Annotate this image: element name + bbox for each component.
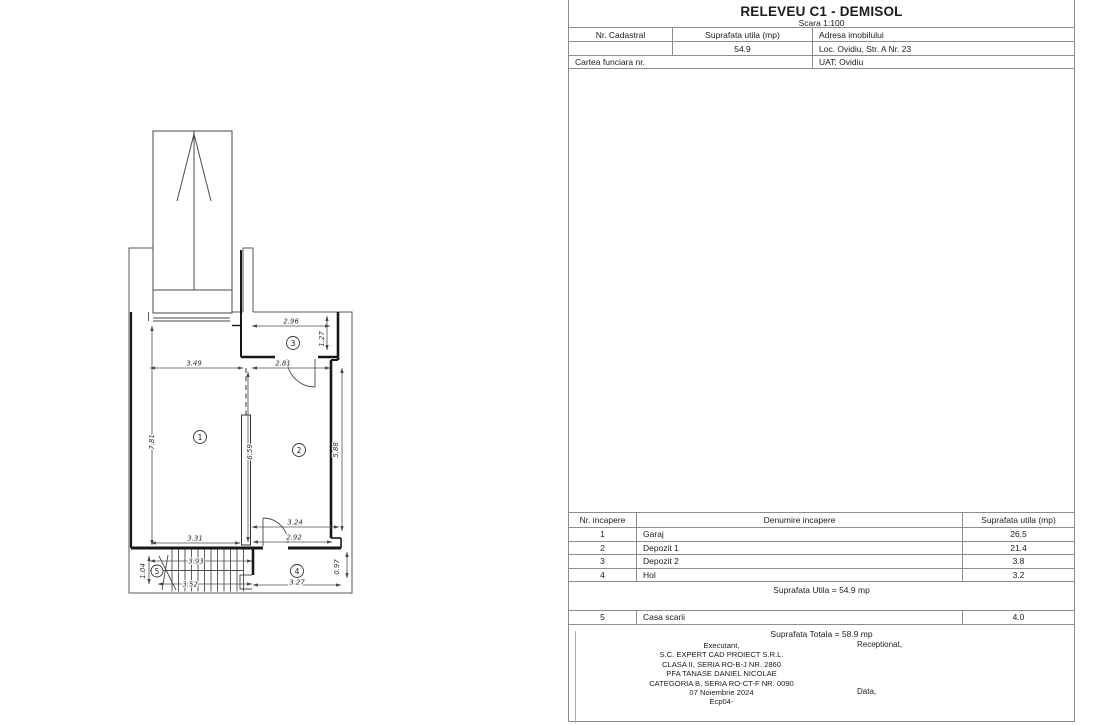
room-row: 3 Depozit 2 3.8 — [569, 555, 1074, 569]
door-arc — [263, 518, 288, 543]
room-name: Garaj — [637, 528, 963, 541]
hol-stairs-threshold — [240, 575, 252, 589]
adresa-value: Loc. Ovidiu, Str. A Nr. 23 — [813, 42, 1074, 55]
executant-block: Executant, S.C. EXPERT CAD PROIECT S.R.L… — [624, 641, 819, 707]
executant-date: 07 Noiembrie 2024 — [624, 688, 819, 697]
dim-label: 3.24 — [287, 519, 303, 527]
uat-value: UAT: Ovidiu — [813, 56, 1074, 68]
room-area: 3.2 — [963, 569, 1074, 582]
door-room3 — [287, 359, 315, 387]
rooms-table: Nr. incapere Denumire incapere Suprafata… — [569, 512, 1074, 643]
dim-label: 3.49 — [186, 360, 202, 368]
suprafata-totala: Suprafata Totala = 58.9 mp — [569, 625, 1074, 643]
header-table-row: 54.9 Loc. Ovidiu, Str. A Nr. 23 — [569, 42, 1074, 56]
room-area: 21.4 — [963, 542, 1074, 555]
page-title: RELEVEU C1 - DEMISOL — [569, 4, 1074, 19]
data-label: Data, — [857, 687, 876, 696]
room-marker-garaj: 1 — [194, 431, 207, 444]
room-nr: 4 — [569, 569, 637, 582]
col-header-denumire: Denumire incapere — [637, 513, 963, 527]
receptionat-label: Receptionat, — [857, 640, 902, 649]
footer-divider-line — [575, 631, 576, 723]
room-markers: 1 2 3 4 5 — [151, 337, 306, 578]
suprafata-utila-label: Suprafata utila (mp) — [673, 28, 813, 41]
room-area: 3.8 — [963, 555, 1074, 568]
svg-text:2: 2 — [297, 446, 302, 455]
walls — [131, 250, 341, 575]
cartea-funciara-label: Cartea funciara nr. — [569, 56, 813, 68]
executant-license-2: CATEGORIA B, SERIA RO-CT-F NR. 0090 — [624, 679, 819, 688]
svg-text:3: 3 — [291, 339, 296, 348]
room-marker-depozit1: 2 — [293, 444, 306, 457]
col-header-nr: Nr. incapere — [569, 513, 637, 527]
room-nr: 1 — [569, 528, 637, 541]
nr-cadastral-value — [569, 42, 673, 55]
floor-plan-area: 3.49 2.81 2.96 3.31 3.24 2.92 3.93 3.52 … — [0, 0, 565, 720]
executant-label: Executant, — [624, 641, 819, 650]
dim-label: 1.27 — [318, 331, 326, 347]
floor-plan: 3.49 2.81 2.96 3.31 3.24 2.92 3.93 3.52 … — [0, 0, 565, 720]
dim-label: 3.31 — [187, 535, 203, 543]
room-row: 4 Hol 3.2 — [569, 569, 1074, 583]
header-table-row: Cartea funciara nr. UAT: Ovidiu — [569, 56, 1074, 69]
room-row: 2 Depozit 1 21.4 — [569, 542, 1074, 556]
dim-label: 3.52 — [182, 581, 198, 589]
adresa-label: Adresa imobilului — [813, 28, 1074, 41]
rooms-table-header: Nr. incapere Denumire incapere Suprafata… — [569, 513, 1074, 528]
suprafata-utila-total: Suprafata Utila = 54.9 mp — [569, 582, 1074, 611]
executant-code: Ecp04- — [624, 697, 819, 706]
dim-label: 6.59 — [246, 444, 254, 460]
room-area: 26.5 — [963, 528, 1074, 541]
title-block-panel: RELEVEU C1 - DEMISOL Scara 1:100 Nr. Cad… — [568, 0, 1075, 722]
room-name: Depozit 2 — [637, 555, 963, 568]
dim-label: 5.88 — [332, 442, 340, 458]
room-row: 1 Garaj 26.5 — [569, 528, 1074, 542]
room-marker-hol: 4 — [291, 565, 304, 578]
cadastral-survey-sheet: { "header": { "title": "RELEVEU C1 - DEM… — [0, 0, 1096, 720]
dim-label: 2.96 — [283, 318, 299, 326]
room-nr: 2 — [569, 542, 637, 555]
room-nr: 3 — [569, 555, 637, 568]
executant-license-1: CLASA II, SERIA RO-B-J NR. 2860 — [624, 660, 819, 669]
room-marker-depozit2: 3 — [287, 337, 300, 350]
garage-ramp — [153, 131, 232, 313]
nr-cadastral-label: Nr. Cadastral — [569, 28, 673, 41]
dim-label: 7.81 — [148, 434, 156, 450]
suprafata-utila-value: 54.9 — [673, 42, 813, 55]
col-header-suprafata: Suprafata utila (mp) — [963, 513, 1074, 527]
dim-label: 2.81 — [275, 360, 291, 368]
room-marker-casa-scarii: 5 — [151, 565, 163, 577]
dim-label: 2.92 — [286, 534, 302, 542]
svg-text:5: 5 — [155, 567, 160, 576]
header-table: Nr. Cadastral Suprafata utila (mp) Adres… — [569, 27, 1074, 69]
room-name: Casa scarii — [637, 611, 963, 624]
room-row-casa-scarii: 5 Casa scarii 4.0 — [569, 611, 1074, 625]
svg-text:4: 4 — [295, 567, 300, 576]
svg-text:1: 1 — [198, 433, 203, 442]
room-area: 4.0 — [963, 611, 1074, 624]
header-table-row: Nr. Cadastral Suprafata utila (mp) Adres… — [569, 28, 1074, 42]
executant-person: PFA TANASE DANIEL NICOLAE — [624, 669, 819, 678]
dim-label: 1.04 — [139, 563, 147, 579]
room-name: Depozit 1 — [637, 542, 963, 555]
room-nr: 5 — [569, 611, 637, 624]
door-arc — [287, 359, 315, 387]
dim-label: 0.97 — [333, 559, 341, 575]
room-name: Hol — [637, 569, 963, 582]
executant-company: S.C. EXPERT CAD PROIECT S.R.L. — [624, 650, 819, 659]
dim-label: 3.93 — [188, 558, 204, 566]
dim-label: 3.27 — [289, 579, 305, 587]
